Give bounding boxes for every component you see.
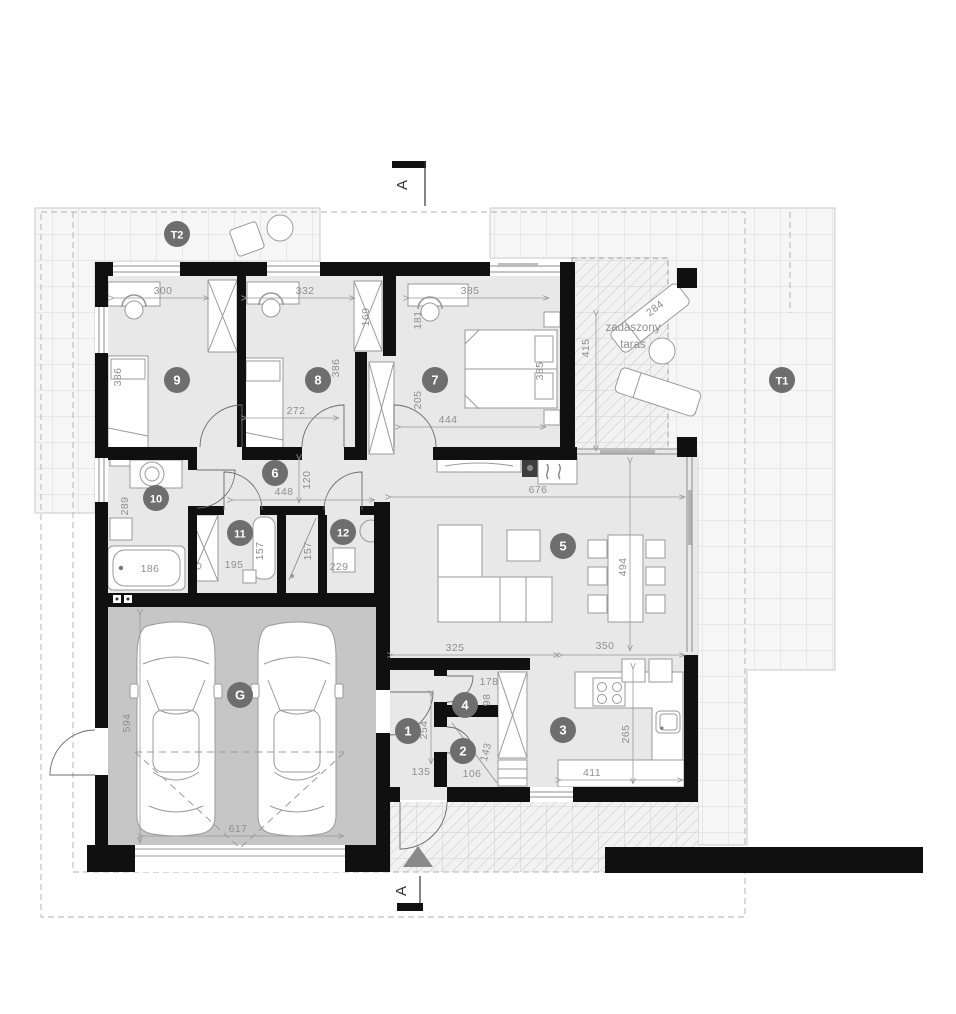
dim-closet-157: 157 <box>302 542 314 561</box>
svg-text:9: 9 <box>173 373 180 388</box>
section-marker-top: A <box>392 161 426 206</box>
nightstand-room7-a <box>544 312 560 327</box>
svg-text:12: 12 <box>337 528 349 540</box>
door-garage-side <box>50 730 95 775</box>
badge-living5: 5 <box>550 533 576 559</box>
window-room9-top <box>113 262 180 276</box>
badge-room11: 11 <box>227 520 253 546</box>
dim-room7-181: 181 <box>412 311 424 330</box>
glass-door-room7 <box>490 262 560 276</box>
car-right <box>251 622 343 836</box>
badge-hall6: 6 <box>262 460 288 486</box>
svg-text:11: 11 <box>234 529 246 541</box>
tv-console <box>437 458 521 472</box>
floor-plan-page: 300 332 385 169 181 386 386 205 272 444 … <box>0 0 956 1014</box>
covered-terrace-line1: zadaszony <box>606 322 661 334</box>
terrace-table-t2 <box>267 215 293 241</box>
window-bathroom-left <box>95 458 108 502</box>
dim-hall-120: 120 <box>301 471 313 490</box>
dim-room8-272: 272 <box>287 405 306 417</box>
dim-room11-157: 157 <box>254 542 266 561</box>
retaining-wall-bar <box>605 847 923 873</box>
svg-text:2: 2 <box>459 744 466 759</box>
dim-room8-width: 332 <box>296 285 315 297</box>
dim-entry-135: 135 <box>412 766 431 778</box>
wardrobe-entry <box>498 672 527 786</box>
terrace-column-top <box>677 268 697 288</box>
badge-garage: G <box>227 682 253 708</box>
section-letter-bottom: A <box>393 886 410 896</box>
dim-living-325: 325 <box>446 642 465 654</box>
window-room8-top <box>267 262 320 276</box>
svg-text:G: G <box>235 688 245 703</box>
svg-text:T1: T1 <box>776 376 789 388</box>
badge-room8: 8 <box>305 367 331 393</box>
desk-room7 <box>408 284 468 306</box>
badge-bathroom10: 10 <box>143 485 169 511</box>
toilet-bathroom10 <box>110 518 132 540</box>
car-left <box>130 622 222 836</box>
small-unit-room11 <box>243 570 256 583</box>
window-room9-left <box>95 307 108 353</box>
wardrobe-room9 <box>208 280 237 352</box>
svg-text:7: 7 <box>431 373 438 388</box>
badge-kitchen3: 3 <box>550 717 576 743</box>
dim-room7-width-top: 385 <box>461 285 480 297</box>
dim-hall-448: 448 <box>275 486 294 498</box>
covered-terrace-line2: taras <box>620 339 646 351</box>
dim-room9-width: 300 <box>154 285 173 297</box>
dim-wc12-229: 229 <box>330 561 349 573</box>
badge-room7: 7 <box>422 367 448 393</box>
dim-living-350: 350 <box>596 640 615 652</box>
dim-garage-594: 594 <box>121 714 133 733</box>
badge-room2: 2 <box>450 738 476 764</box>
window-kitchen-bottom <box>530 787 573 802</box>
wardrobe-room7 <box>369 362 394 454</box>
kitchen-counter-bottom <box>558 760 684 787</box>
badge-entry1: 1 <box>395 718 421 744</box>
dim-room8-depth: 386 <box>330 359 342 378</box>
terrace-table-t1 <box>649 338 675 364</box>
badge-terrace-t1: T1 <box>769 367 795 393</box>
dim-living-676: 676 <box>529 484 548 496</box>
dim-wardrobe8-height: 169 <box>360 308 372 327</box>
nightstand-room7-b <box>544 410 560 425</box>
dim-bath-289: 289 <box>119 497 131 516</box>
dim-kitchen-411: 411 <box>583 767 601 779</box>
dim-room4-98: 98 <box>481 694 493 706</box>
dim-room7-205: 205 <box>412 391 424 410</box>
fridge <box>622 659 645 682</box>
svg-text:8: 8 <box>314 373 321 388</box>
dim-terrace-415: 415 <box>580 339 592 358</box>
bathroom-counter <box>130 460 182 488</box>
dining-set <box>588 535 665 622</box>
svg-text:10: 10 <box>150 494 162 506</box>
svg-text:6: 6 <box>271 466 278 481</box>
dim-room11-195: 195 <box>225 559 244 571</box>
svg-text:3: 3 <box>559 723 566 738</box>
dim-garage-617: 617 <box>229 823 248 835</box>
dim-bathtub-186: 186 <box>141 563 160 575</box>
dim-room7-444: 444 <box>439 414 458 426</box>
floor-plan-drawing: 300 332 385 169 181 386 386 205 272 444 … <box>0 0 956 1014</box>
dim-room7-right: 385 <box>534 362 546 381</box>
dim-room9-bed: 386 <box>112 368 124 387</box>
dim-room4-178: 178 <box>480 676 499 688</box>
dim-room2-106: 106 <box>463 768 482 780</box>
badge-room9: 9 <box>164 367 190 393</box>
svg-text:4: 4 <box>461 698 469 713</box>
svg-text:5: 5 <box>559 539 566 554</box>
svg-text:1: 1 <box>404 724 411 739</box>
badge-room4: 4 <box>452 692 478 718</box>
section-marker-bottom: A <box>393 876 423 911</box>
section-letter-top: A <box>394 180 411 190</box>
coffee-table <box>507 530 540 561</box>
badge-terrace-t2: T2 <box>164 221 190 247</box>
dim-kitchen-265: 265 <box>620 725 632 744</box>
kitchen-sink <box>656 711 680 733</box>
tall-cabinet-kitchen <box>649 659 672 682</box>
terrace-column-bottom <box>677 437 697 457</box>
dim-living-494: 494 <box>617 558 629 577</box>
badge-wc12: 12 <box>330 519 356 545</box>
svg-text:T2: T2 <box>171 230 184 242</box>
